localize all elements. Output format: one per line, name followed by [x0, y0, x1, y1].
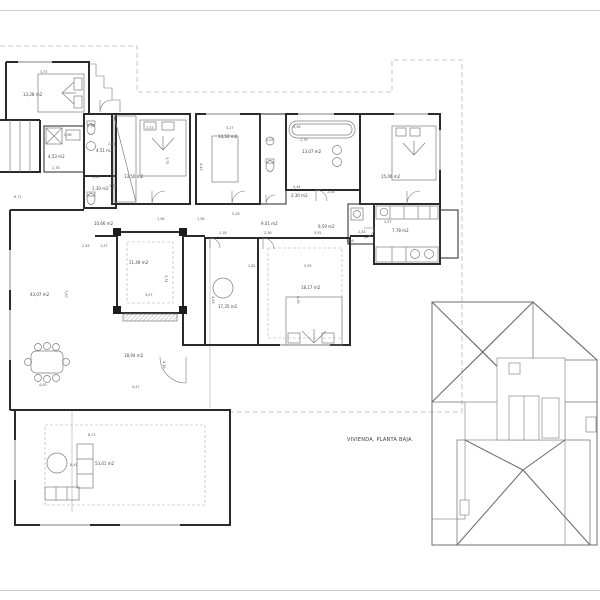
room-area-label: 13,07 m2	[302, 149, 322, 154]
dimension-label: 8,73	[88, 433, 96, 437]
dimension-label: 2,05	[266, 138, 274, 142]
dimension-label: 2,43	[146, 126, 154, 130]
dimension-label: 3,92	[314, 231, 322, 235]
dimension-label: 0,98	[64, 133, 72, 137]
dimension-label: 3,75	[40, 70, 48, 74]
pillar	[179, 228, 187, 236]
dimension-label: 1,44	[109, 184, 117, 188]
dimension-label: 1,27	[100, 244, 108, 248]
floor-plan-sheet: 13,28 m2 4,53 m2 4,51 m2 2,30 m2 13,50 m…	[0, 0, 600, 600]
room-area-label: 10,66 m2	[94, 221, 114, 226]
room-area-label: 13,28 m2	[23, 92, 43, 97]
room-area-label: 18,94 m2	[124, 353, 144, 358]
dimension-label: 2,57	[384, 220, 392, 224]
roof-skylight-icon	[460, 500, 469, 515]
dimension-label: 2,43	[82, 244, 90, 248]
roof-skylight-icon	[509, 363, 520, 374]
dimension-label: 2,95	[304, 264, 312, 268]
dimension-label: 2,36	[264, 231, 272, 235]
dimension-label: 2,82	[248, 264, 256, 268]
dimension-label: 5,28	[232, 212, 240, 216]
dimension-label: 3,74	[164, 275, 168, 283]
room-area-label: 14,50 m2	[218, 134, 238, 139]
dimension-label: 7,60	[64, 290, 68, 298]
room-area-label: 2,30 m2	[291, 193, 308, 198]
room-area-label: 9,01 m2	[261, 221, 278, 226]
dimension-label: 4,47	[132, 385, 140, 389]
room-area-label: 2,30 m2	[92, 186, 109, 191]
pillar	[113, 306, 121, 314]
room-area-label: 7,78 m2	[392, 228, 409, 233]
roof-window	[542, 398, 559, 438]
pillar	[113, 228, 121, 236]
dimension-label: 1,08	[327, 190, 335, 194]
room-area-label: 13,50 m2	[124, 174, 144, 179]
dimension-label: 1,62	[92, 175, 100, 179]
dimension-label: 3,07	[145, 293, 153, 297]
dimension-label: 2,78	[52, 166, 60, 170]
dimension-label: 3,27	[226, 126, 234, 130]
room-area-label: 11,49 m2	[129, 260, 149, 265]
sideboard-icon	[123, 314, 177, 321]
dimension-label: 2,43	[358, 230, 366, 234]
room-area-label: 4,53 m2	[48, 154, 65, 159]
dimension-label: 4,36	[162, 361, 166, 369]
dimension-label: 2,18	[219, 231, 227, 235]
room-area-label: 9,59 m2	[318, 224, 335, 229]
pillar	[179, 306, 187, 314]
dimension-label: 8,41	[70, 463, 78, 467]
room-area-label: 17,35 m2	[218, 304, 238, 309]
dimension-label: 4,00	[39, 383, 47, 387]
dimension-label: 3,75	[165, 157, 169, 165]
dimension-label: 2,41	[108, 142, 116, 146]
room-area-label: 4,51 m2	[96, 148, 113, 153]
dimension-label: 4,38	[293, 125, 301, 129]
roof-skylight-icon	[586, 417, 596, 432]
dimension-label: 4,44	[293, 185, 301, 189]
room-area-label: 15,06 m2	[381, 174, 401, 179]
dimension-label: 1,06	[157, 217, 165, 221]
dimension-label: 4,43	[199, 163, 203, 171]
dimension-label: 1,56	[346, 239, 354, 243]
dimension-label: 4,59	[211, 296, 215, 304]
dimension-label: 2,79	[300, 138, 308, 142]
room-area-label: 18,17 m2	[301, 285, 321, 290]
dimension-label: 6,71	[14, 195, 22, 199]
room-area-label: 53,01 m2	[95, 461, 115, 466]
drawing-title: VIVIENDA. PLANTA BAJA.	[347, 437, 414, 443]
dimension-label: 1,78	[87, 124, 95, 128]
room-area-label: 43,07 m2	[30, 292, 50, 297]
dimension-label: 1,98	[197, 217, 205, 221]
dimension-label: 4,56	[296, 296, 300, 304]
